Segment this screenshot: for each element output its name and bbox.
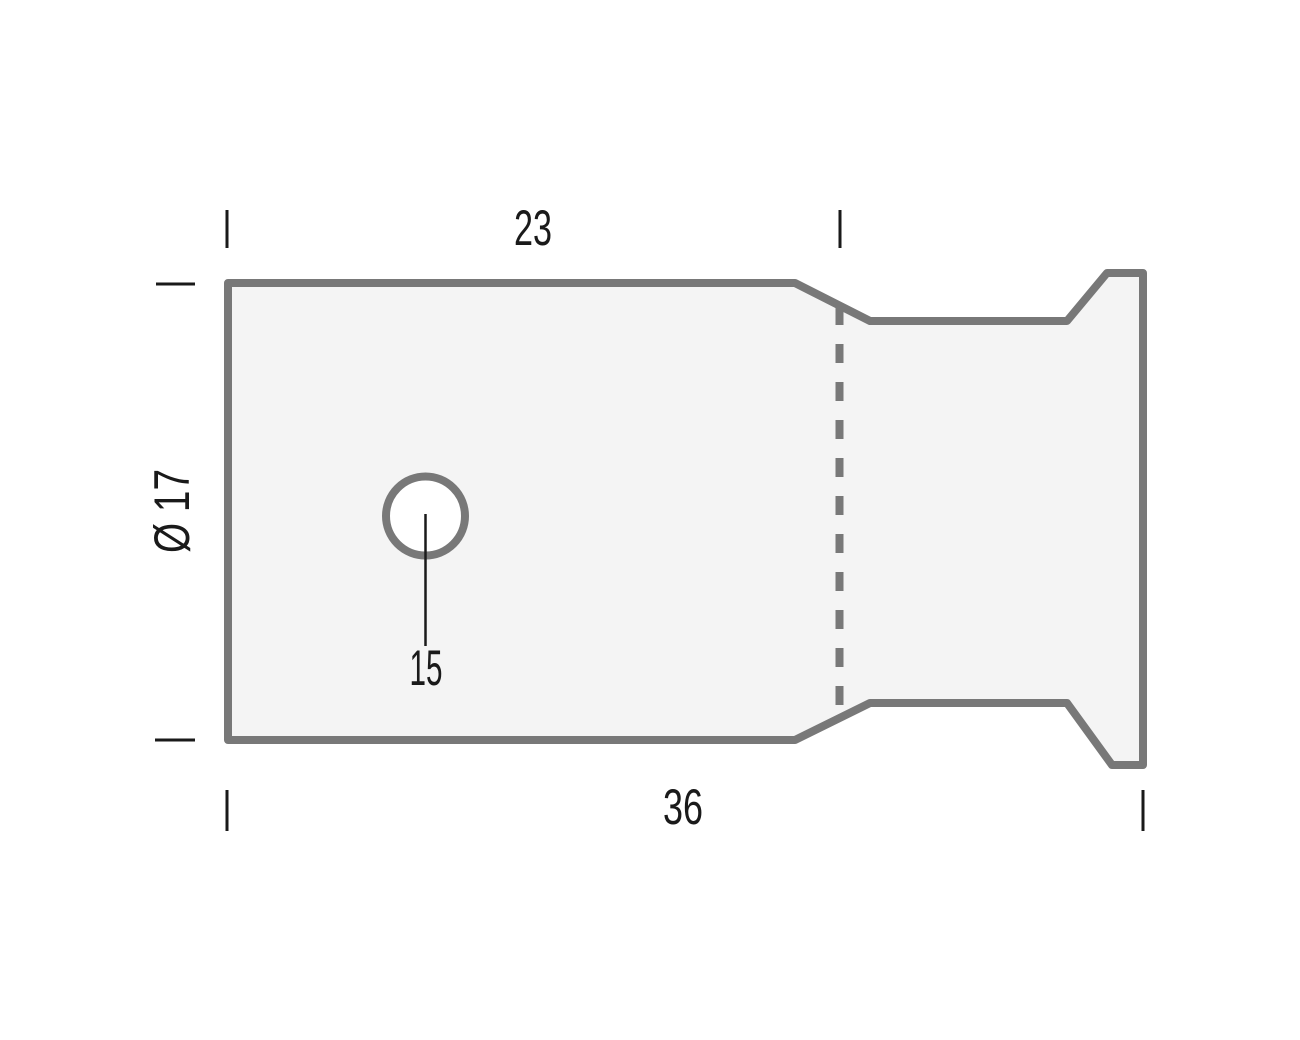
dim-diameter-label: Ø 17: [144, 469, 200, 553]
dim-36-label: 36: [663, 779, 703, 835]
technical-drawing: 23 Ø 17 15 36: [0, 0, 1300, 1040]
dim-hole-label: 15: [410, 640, 443, 696]
drawing-canvas: 23 Ø 17 15 36: [0, 0, 1300, 1040]
part-outline: [228, 273, 1143, 765]
dim-23-label: 23: [514, 200, 552, 256]
